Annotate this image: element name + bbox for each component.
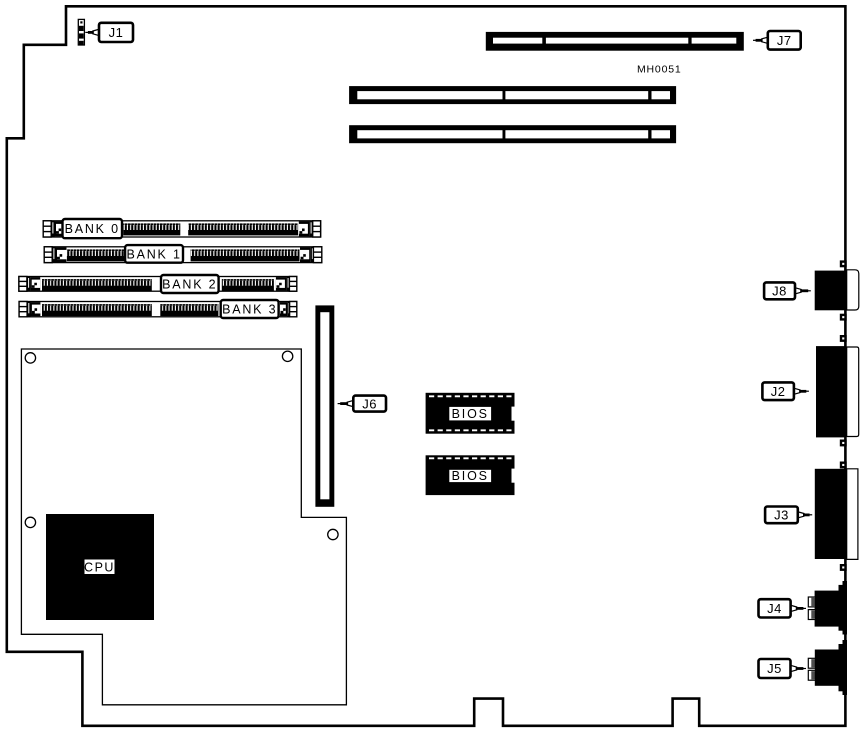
svg-text:BANK 2: BANK 2 xyxy=(162,277,217,291)
svg-text:CPU: CPU xyxy=(84,560,115,574)
svg-text:J1: J1 xyxy=(109,25,124,40)
svg-text:BIOS: BIOS xyxy=(452,469,489,483)
svg-text:J5: J5 xyxy=(767,661,782,676)
svg-text:BANK 0: BANK 0 xyxy=(65,222,120,236)
svg-text:J7: J7 xyxy=(777,33,792,48)
svg-text:BANK 1: BANK 1 xyxy=(126,247,181,261)
svg-text:J6: J6 xyxy=(362,396,377,411)
svg-text:J2: J2 xyxy=(771,384,786,399)
svg-text:J8: J8 xyxy=(772,284,787,299)
svg-text:BIOS: BIOS xyxy=(452,407,489,421)
svg-text:J4: J4 xyxy=(767,601,782,616)
svg-text:BANK 3: BANK 3 xyxy=(222,302,277,316)
svg-text:J3: J3 xyxy=(774,508,789,523)
svg-text:MH0051: MH0051 xyxy=(637,63,682,75)
